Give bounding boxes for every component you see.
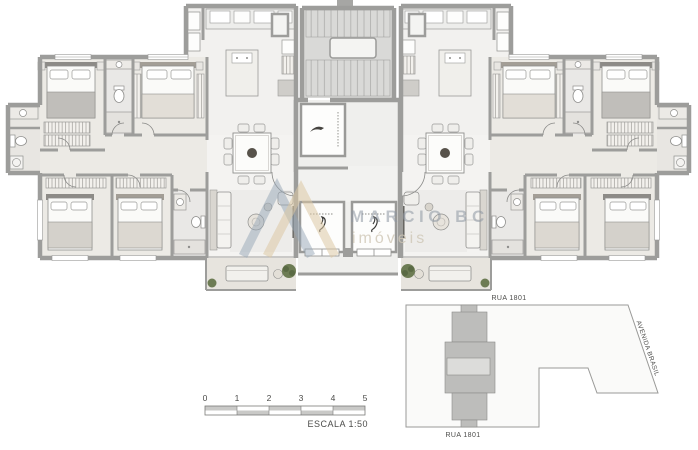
floor-plan-page: MARCIO BC imóveis 0 1 2 3 4 5 ESCALA 1:5… [0, 0, 698, 450]
scale-tick: 1 [235, 393, 240, 403]
scale-tick: 5 [363, 393, 368, 403]
plan-drawing: MARCIO BC imóveis 0 1 2 3 4 5 ESCALA 1:5… [0, 0, 698, 450]
scale-bar-graphic [205, 406, 365, 415]
street-label-top: RUA 1801 [491, 295, 526, 302]
scale-tick: 3 [299, 393, 304, 403]
building-plan [8, 0, 689, 290]
watermark-subtitle-text: imóveis [352, 230, 427, 247]
scale-tick: 2 [267, 393, 272, 403]
elevator-service [301, 104, 345, 156]
unit-left [8, 6, 296, 290]
scale-bar: 0 1 2 3 4 5 ESCALA 1:50 [203, 393, 368, 429]
stairwell [304, 8, 392, 98]
scale-tick: 0 [203, 393, 208, 403]
street-label-bottom: RUA 1801 [445, 432, 480, 439]
stair-landing [330, 38, 376, 58]
site-map: RUA 1801 RUA 1801 AVENIDA BRASIL [406, 295, 660, 439]
shaft [272, 14, 288, 36]
watermark-brand-text: MARCIO BC [350, 207, 489, 226]
scale-tick: 4 [331, 393, 336, 403]
site-lot [406, 305, 658, 427]
shaft [409, 14, 425, 36]
unit-right [401, 6, 689, 290]
scale-label: ESCALA 1:50 [307, 419, 368, 429]
